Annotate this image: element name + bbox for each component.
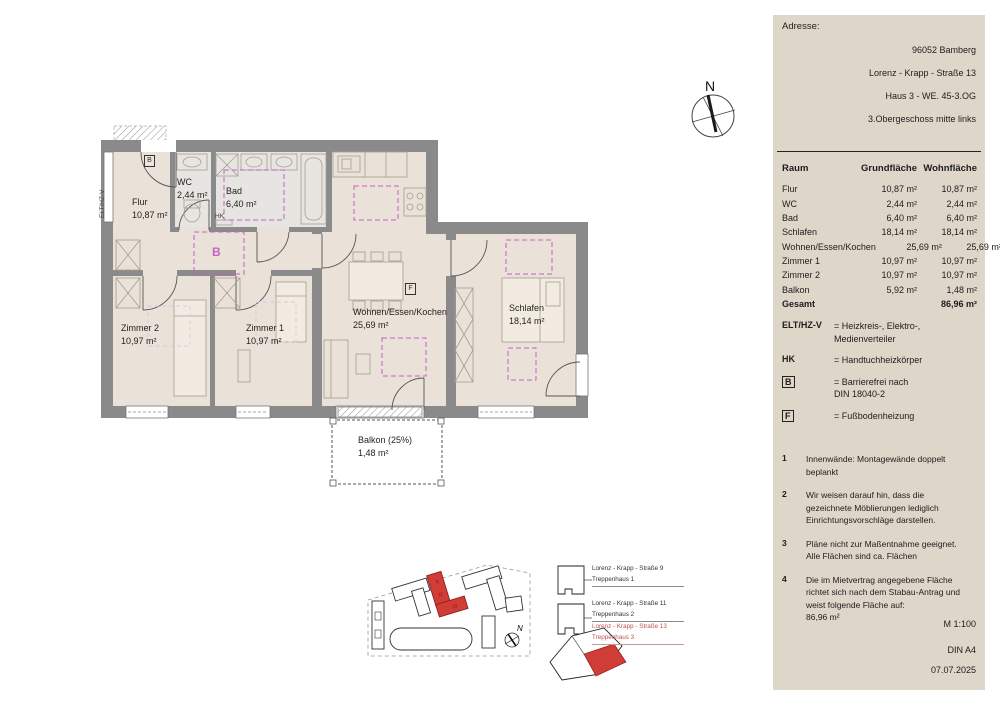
table-header: Raum Grundfläche Wohnfläche: [782, 161, 977, 175]
site-north-label: N: [517, 624, 523, 633]
room-label-zimmer2: Zimmer 210,97 m²: [121, 322, 159, 348]
room-label-zimmer1: Zimmer 110,97 m²: [246, 322, 284, 348]
table-row: Schlafen18,14 m²18,14 m²: [782, 225, 977, 239]
table-row: Wohnen/Essen/Kochen25,69 m²25,69 m²: [782, 239, 977, 253]
site-north: [505, 633, 519, 647]
address-heading: Adresse:: [782, 21, 820, 32]
stair-landing: [114, 126, 166, 141]
address-block: 96052 Bamberg Lorenz - Krapp - Straße 13…: [868, 39, 976, 131]
barrier-free-box-icon: B: [782, 376, 795, 388]
distributor-label: ELT/HZ-V: [99, 190, 106, 218]
note: 2Wir weisen darauf hin, dass die gezeich…: [782, 489, 977, 527]
key-entry-2: Lorenz - Krapp - Straße 11 Treppenhaus 2: [592, 598, 684, 622]
note: 4Die im Mietvertrag angegebene Fläche ri…: [782, 574, 977, 624]
panel-divider: [777, 151, 981, 152]
stairwell-label: Treppenhaus 1: [592, 574, 684, 587]
area-table: Raum Grundfläche Wohnfläche Flur10,87 m²…: [782, 161, 977, 311]
street-label: Lorenz - Krapp - Straße 9: [592, 563, 684, 574]
floor-heating-box-icon: F: [782, 410, 794, 422]
room-label-balkon: Balkon (25%)1,48 m²: [358, 434, 412, 460]
legend-row: ELT/HZ-V = Heizkreis-, Elektro-, Medienv…: [782, 320, 977, 345]
floor-heating-box-icon: F: [405, 283, 416, 295]
scale-label: M 1:100: [931, 618, 976, 630]
note: 3Pläne nicht zur Maßentnahme geeignet. A…: [782, 538, 977, 563]
table-row: WC2,44 m²2,44 m²: [782, 197, 977, 211]
legend-row: B = Barrierefrei nach DIN 18040-2: [782, 376, 977, 401]
legend-row: F = Fußbodenheizung: [782, 410, 977, 423]
floor-plan-sheet: { "panel": { "address": { "label": "Adre…: [0, 0, 1000, 707]
table-row: Zimmer 210,97 m²10,97 m²: [782, 268, 977, 282]
address-unit: Haus 3 - WE. 45-3.OG: [868, 85, 976, 108]
table-total-row: Gesamt86,96 m²: [782, 297, 977, 311]
legend: ELT/HZ-V = Heizkreis-, Elektro-, Medienv…: [782, 320, 977, 431]
room-label-bad: Bad6,40 m²: [226, 185, 257, 211]
room-label-wc: WC2,44 m²: [177, 176, 208, 202]
address-street: Lorenz - Krapp - Straße 13: [868, 62, 976, 85]
notes: 1Innenwände: Montagewände doppelt beplan…: [782, 453, 977, 635]
note: 1Innenwände: Montagewände doppelt beplan…: [782, 453, 977, 478]
site-plan: 9 11 13 N: [368, 565, 530, 656]
legend-row: HK = Handtuchheizkörper: [782, 354, 977, 367]
address-city: 96052 Bamberg: [868, 39, 976, 62]
sheet-footer: M 1:100 DIN A4 07.07.2025: [931, 618, 976, 676]
format-label: DIN A4: [931, 644, 976, 656]
address-floor: 3.Obergeschoss mitte links: [868, 108, 976, 131]
street-label: Lorenz - Krapp - Straße 13: [592, 621, 684, 632]
info-panel: Adresse: 96052 Bamberg Lorenz - Krapp - …: [773, 15, 985, 690]
room-label-wohnen: Wohnen/Essen/Kochen25,69 m²: [353, 306, 447, 332]
table-row: Zimmer 110,97 m²10,97 m²: [782, 254, 977, 268]
key-entry-3-highlighted: Lorenz - Krapp - Straße 13 Treppenhaus 3: [592, 621, 684, 645]
key-entry-1: Lorenz - Krapp - Straße 9 Treppenhaus 1: [592, 563, 684, 587]
towel-radiator-label: HK: [215, 213, 224, 220]
barrier-free-box-icon: B: [144, 155, 155, 167]
stairwell-label: Treppenhaus 3: [592, 632, 684, 645]
compass-rose: [692, 95, 735, 137]
barrier-free-area-label: B: [212, 245, 221, 259]
table-row: Bad6,40 m²6,40 m²: [782, 211, 977, 225]
room-label-schlafen: Schlafen18,14 m²: [509, 302, 545, 328]
table-row: Flur10,87 m²10,87 m²: [782, 182, 977, 196]
room-label-flur: Flur10,87 m²: [132, 196, 168, 222]
street-label: Lorenz - Krapp - Straße 11: [592, 598, 684, 609]
balcony-threshold: [338, 407, 422, 417]
table-row: Balkon5,92 m²1,48 m²: [782, 282, 977, 296]
north-label: N: [705, 78, 715, 94]
date-label: 07.07.2025: [931, 664, 976, 676]
